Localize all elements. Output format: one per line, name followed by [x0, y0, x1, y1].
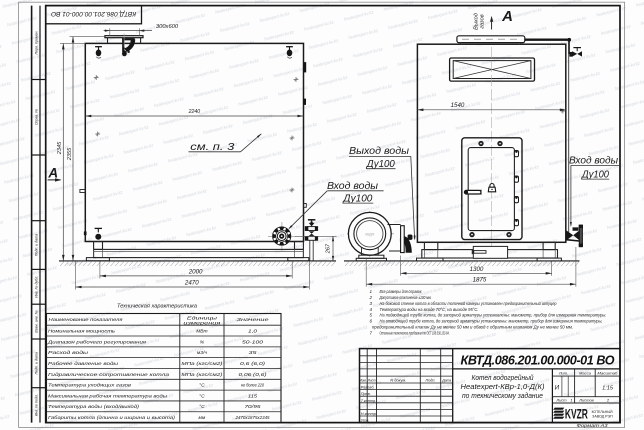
svg-text:267: 267 — [325, 243, 331, 254]
svg-text:70/95: 70/95 — [245, 404, 261, 410]
svg-text:Остальные технические требован: Остальные технические требования по ОСТ … — [380, 331, 450, 336]
svg-text:Номинальная мощность: Номинальная мощность — [48, 329, 115, 335]
svg-text:Листов: Листов — [578, 398, 594, 403]
svg-text:не более 220: не более 220 — [241, 383, 264, 389]
svg-text:м3/ч: м3/ч — [197, 350, 207, 356]
svg-text:1,0: 1,0 — [248, 329, 257, 335]
svg-text:МВт: МВт — [196, 329, 207, 335]
svg-text:N докум.: N докум. — [390, 379, 406, 383]
svg-text:ЗАВОД РЭП: ЗАВОД РЭП — [592, 414, 613, 418]
svg-text:Максимальная рабочая температу: Максимальная рабочая температура воды — [48, 393, 167, 399]
svg-text:Разраб.: Разраб. — [361, 386, 375, 390]
svg-text:На подводящей трубе котла, д: На подводящей трубе котла, до запорной а… — [380, 312, 607, 318]
svg-text:МПа (кгс/см2): МПа (кгс/см2) — [181, 372, 222, 378]
svg-text:Вход воды: Вход воды — [569, 156, 619, 167]
svg-text:Масса: Масса — [579, 370, 592, 375]
svg-text:Наименование показателя: Наименование показателя — [49, 317, 123, 323]
svg-text:Справ. №: Справ. № — [34, 109, 38, 125]
svg-text:Значение: Значение — [237, 317, 269, 323]
svg-text:KVZR: KVZR — [565, 406, 588, 421]
svg-text:Температура воды (вход/выход): Температура воды (вход/выход) — [48, 404, 139, 410]
svg-text:КВТД.086.201.00.000-01 ВО: КВТД.086.201.00.000-01 ВО — [461, 353, 615, 367]
svg-text:мм: мм — [199, 416, 206, 421]
svg-text:Техническая характеристика: Техническая характеристика — [117, 304, 197, 310]
svg-text:Формат А3: Формат А3 — [577, 423, 609, 428]
svg-text:Утв.: Утв. — [361, 418, 370, 422]
svg-text:КВТД.086.201.00.000-01 ВО: КВТД.086.201.00.000-01 ВО — [51, 10, 136, 17]
svg-text:Инв. № подл.: Инв. № подл. — [34, 394, 38, 416]
svg-text:И: И — [555, 384, 560, 391]
svg-text:°С: °С — [199, 404, 205, 410]
svg-text:Все размеры для справок: Все размеры для справок — [380, 289, 423, 294]
svg-text:Подп.: Подп. — [426, 379, 436, 383]
svg-text:Дата: Дата — [441, 379, 451, 383]
svg-text:°С: °С — [199, 393, 205, 399]
svg-text:1540: 1540 — [451, 102, 465, 109]
svg-text:КВДМ: КВДМ — [365, 233, 374, 237]
svg-text:Лист: Лист — [555, 398, 567, 403]
svg-text:Вход воды: Вход воды — [327, 181, 379, 192]
svg-text:Расход воды: Расход воды — [48, 350, 89, 356]
svg-text:Габариты котла (длинна и ширин: Габариты котла (длинна и ширина и высота… — [48, 415, 175, 421]
svg-text:по техническому задание: по техническому задание — [462, 392, 543, 400]
svg-text:Изм.: Изм. — [360, 379, 367, 383]
svg-text:Масштаб: Масштаб — [597, 370, 618, 375]
svg-text:°С: °С — [199, 383, 205, 389]
svg-text:2345: 2345 — [57, 141, 63, 155]
svg-text:Рабочее давление воды: Рабочее давление воды — [48, 361, 119, 367]
svg-text:На отводящей трубе котла, до з: На отводящей трубе котла, до запорной ар… — [380, 318, 603, 324]
svg-text:см. п. 3: см. п. 3 — [190, 142, 234, 153]
svg-text:измерения: измерения — [183, 320, 221, 325]
svg-text:2: 2 — [369, 295, 373, 300]
svg-text:Heatexpert-КВр-1,0-Д(К): Heatexpert-КВр-1,0-Д(К) — [461, 384, 545, 391]
svg-text:А: А — [501, 8, 513, 25]
svg-text:2470х1875х2345: 2470х1875х2345 — [235, 415, 270, 421]
svg-text:Лист: Лист — [367, 379, 376, 383]
svg-text:Температура воды на входе 70°С: Температура воды на входе 70°С, на выход… — [380, 307, 479, 312]
svg-text:300х600: 300х600 — [156, 24, 179, 30]
svg-text:Подп. и дата: Подп. и дата — [34, 352, 38, 375]
svg-text:Температура уходящих газов: Температура уходящих газов — [48, 383, 132, 389]
svg-text:2355: 2355 — [67, 147, 73, 161]
svg-text:Выход воды: Выход воды — [349, 146, 410, 157]
svg-text:Взам. инв. №: Взам. инв. № — [34, 310, 38, 332]
svg-text:2240: 2240 — [188, 109, 201, 115]
svg-text:35: 35 — [249, 350, 257, 356]
svg-text:1: 1 — [570, 398, 572, 403]
svg-text:МПа (кгс/см2): МПа (кгс/см2) — [181, 361, 222, 367]
svg-text:Подп. и дата: Подп. и дата — [34, 234, 38, 257]
svg-text:Н.контр.: Н.контр. — [361, 412, 377, 416]
svg-text:КОТЕЛЬНЫЙ: КОТЕЛЬНЫЙ — [592, 410, 614, 414]
svg-text:Диапазон рабочего регулировани: Диапазон рабочего регулирования — [47, 339, 147, 345]
svg-text:115: 115 — [248, 393, 257, 399]
svg-text:А: А — [47, 166, 58, 181]
svg-text:1875: 1875 — [473, 277, 487, 284]
svg-text:Пров.: Пров. — [361, 392, 371, 396]
svg-text:Гидравлическое сопротивление к: Гидравлическое сопротивление котла — [48, 372, 169, 378]
svg-text:Котел водогрейный: Котел водогрейный — [472, 374, 534, 382]
svg-text:2470: 2470 — [184, 280, 199, 287]
svg-text:Перв. примен.: Перв. примен. — [34, 31, 38, 55]
svg-text:На боковой стенке котла в обла: На боковой стенке котла в области топочн… — [380, 300, 557, 306]
svg-text:газов: газов — [479, 14, 485, 28]
svg-text:0,06 (0,6): 0,06 (0,6) — [239, 372, 267, 378]
svg-text:1300: 1300 — [470, 266, 484, 273]
svg-text:2000: 2000 — [188, 268, 203, 275]
svg-text:Лит.: Лит. — [558, 370, 568, 375]
svg-text:предохранительный клапан Ду н: предохранительный клапан Ду не менее 50 … — [372, 324, 573, 330]
svg-text:1:15: 1:15 — [602, 385, 614, 391]
svg-text:Т.контр.: Т.контр. — [361, 399, 376, 403]
svg-text:Допустимое отклонение ±100 мм.: Допустимое отклонение ±100 мм. — [379, 295, 432, 300]
svg-text:50-100: 50-100 — [242, 339, 263, 345]
svg-text:0,6 (6,0): 0,6 (6,0) — [240, 361, 266, 367]
svg-text:%: % — [200, 339, 205, 345]
svg-text:Инв. № дубл.: Инв. № дубл. — [34, 276, 38, 298]
